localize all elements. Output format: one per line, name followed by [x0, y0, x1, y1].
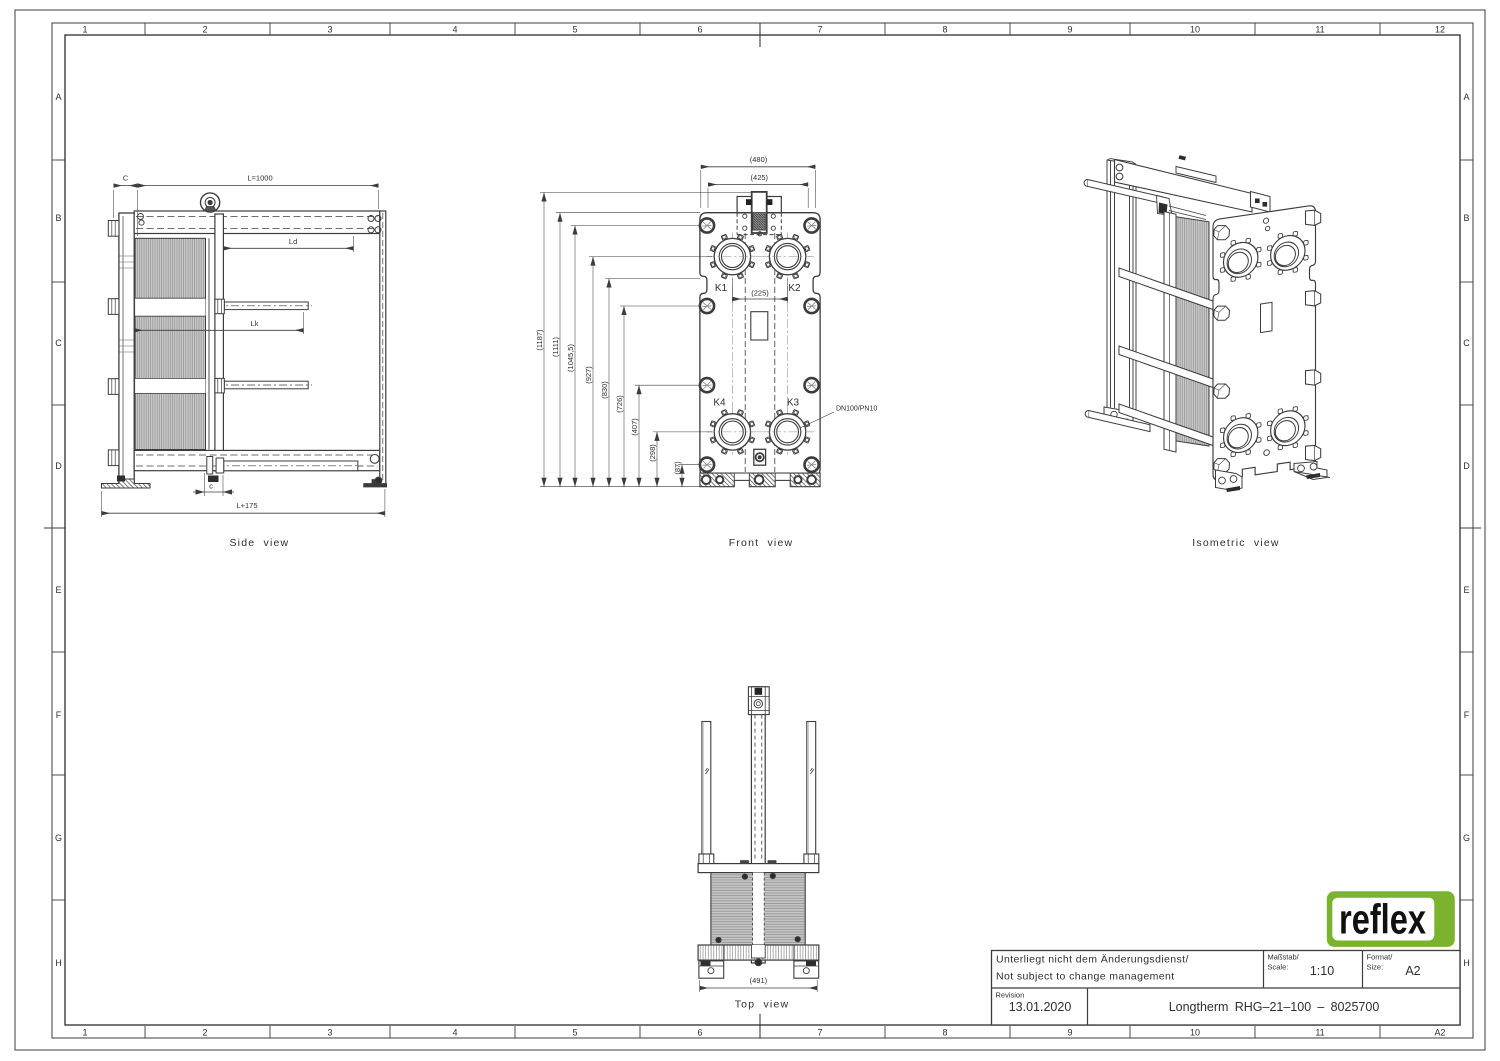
svg-text:(1187): (1187): [535, 329, 544, 351]
svg-text:C: C: [1463, 338, 1470, 348]
svg-text:Top view: Top view: [735, 999, 790, 1011]
svg-text:Front view: Front view: [729, 537, 794, 549]
svg-text:8: 8: [942, 25, 947, 35]
svg-text:5: 5: [572, 1028, 577, 1038]
svg-text:E: E: [55, 585, 61, 595]
svg-text:L+175: L+175: [236, 501, 257, 510]
svg-text:1: 1: [82, 25, 87, 35]
svg-text:B: B: [1463, 213, 1469, 223]
svg-text:3: 3: [327, 25, 332, 35]
svg-text:10: 10: [1190, 1028, 1200, 1038]
svg-text:5: 5: [572, 25, 577, 35]
svg-text:Ld: Ld: [289, 237, 297, 246]
svg-text:(425): (425): [751, 173, 769, 182]
svg-text:9: 9: [1067, 25, 1072, 35]
svg-text:(1045,5): (1045,5): [566, 344, 575, 372]
svg-text:3: 3: [327, 1028, 332, 1038]
svg-text:4: 4: [452, 25, 457, 35]
svg-text:reflex: reflex: [1339, 896, 1426, 943]
svg-text:Revision: Revision: [996, 991, 1025, 1000]
svg-text:L=1000: L=1000: [247, 173, 272, 182]
svg-text:12: 12: [1435, 25, 1445, 35]
svg-text:6: 6: [697, 1028, 702, 1038]
svg-text:2: 2: [202, 1028, 207, 1038]
svg-text:B: B: [55, 213, 61, 223]
svg-text:Isometric view: Isometric view: [1192, 537, 1279, 549]
svg-text:F: F: [1464, 710, 1470, 720]
svg-text:H: H: [1463, 958, 1470, 968]
svg-text:K3: K3: [787, 398, 800, 409]
svg-text:(87): (87): [673, 461, 682, 475]
svg-text:G: G: [55, 833, 62, 843]
svg-text:Size:: Size:: [1367, 963, 1384, 972]
svg-text:K4: K4: [713, 398, 726, 409]
svg-text:C: C: [123, 173, 129, 182]
svg-text:A2: A2: [1434, 1028, 1445, 1038]
svg-text:D: D: [55, 461, 62, 471]
svg-text:A: A: [55, 92, 61, 102]
svg-text:A: A: [1463, 92, 1469, 102]
svg-text:8: 8: [942, 1028, 947, 1038]
svg-text:Format/: Format/: [1367, 953, 1394, 962]
svg-text:(830): (830): [600, 381, 609, 399]
svg-text:Unterliegt nicht dem Änderungs: Unterliegt nicht dem Änderungsdienst/: [996, 954, 1189, 966]
svg-text:F: F: [56, 710, 62, 720]
svg-text:Not subject to change manageme: Not subject to change management: [996, 971, 1175, 983]
svg-text:Scale:: Scale:: [1268, 963, 1289, 972]
svg-text:(1111): (1111): [551, 336, 560, 357]
svg-text:9: 9: [1067, 1028, 1072, 1038]
svg-text:Longtherm RHG–21–100 – 8025700: Longtherm RHG–21–100 – 8025700: [1169, 1000, 1380, 1014]
svg-text:1:10: 1:10: [1310, 964, 1334, 978]
svg-text:2: 2: [202, 25, 207, 35]
svg-text:(407): (407): [630, 418, 639, 436]
svg-text:6: 6: [697, 25, 702, 35]
svg-text:D: D: [1463, 461, 1470, 471]
svg-text:11: 11: [1315, 1028, 1324, 1038]
svg-text:11: 11: [1315, 25, 1324, 35]
svg-text:Maßstab/: Maßstab/: [1268, 953, 1300, 962]
svg-text:Lk: Lk: [251, 319, 259, 328]
svg-text:(491): (491): [750, 976, 768, 985]
svg-text:G: G: [1463, 833, 1470, 843]
svg-text:(480): (480): [750, 155, 768, 164]
svg-text:DN100/PN10: DN100/PN10: [836, 406, 877, 413]
svg-text:(927): (927): [584, 366, 593, 384]
svg-text:E: E: [1463, 585, 1469, 595]
svg-text:7: 7: [817, 1028, 822, 1038]
svg-text:4: 4: [452, 1028, 457, 1038]
svg-text:c: c: [209, 482, 213, 491]
svg-text:1: 1: [82, 1028, 87, 1038]
svg-text:(298): (298): [648, 444, 657, 462]
svg-text:7: 7: [817, 25, 822, 35]
svg-text:C: C: [55, 338, 62, 348]
svg-text:A2: A2: [1405, 964, 1420, 978]
svg-text:10: 10: [1190, 25, 1200, 35]
svg-text:Side view: Side view: [229, 537, 289, 549]
svg-text:13.01.2020: 13.01.2020: [1009, 1000, 1072, 1014]
svg-text:K2: K2: [788, 283, 801, 294]
svg-text:H: H: [55, 958, 62, 968]
svg-text:K1: K1: [715, 283, 728, 294]
svg-text:(225): (225): [751, 288, 769, 297]
svg-text:(726): (726): [615, 395, 624, 413]
